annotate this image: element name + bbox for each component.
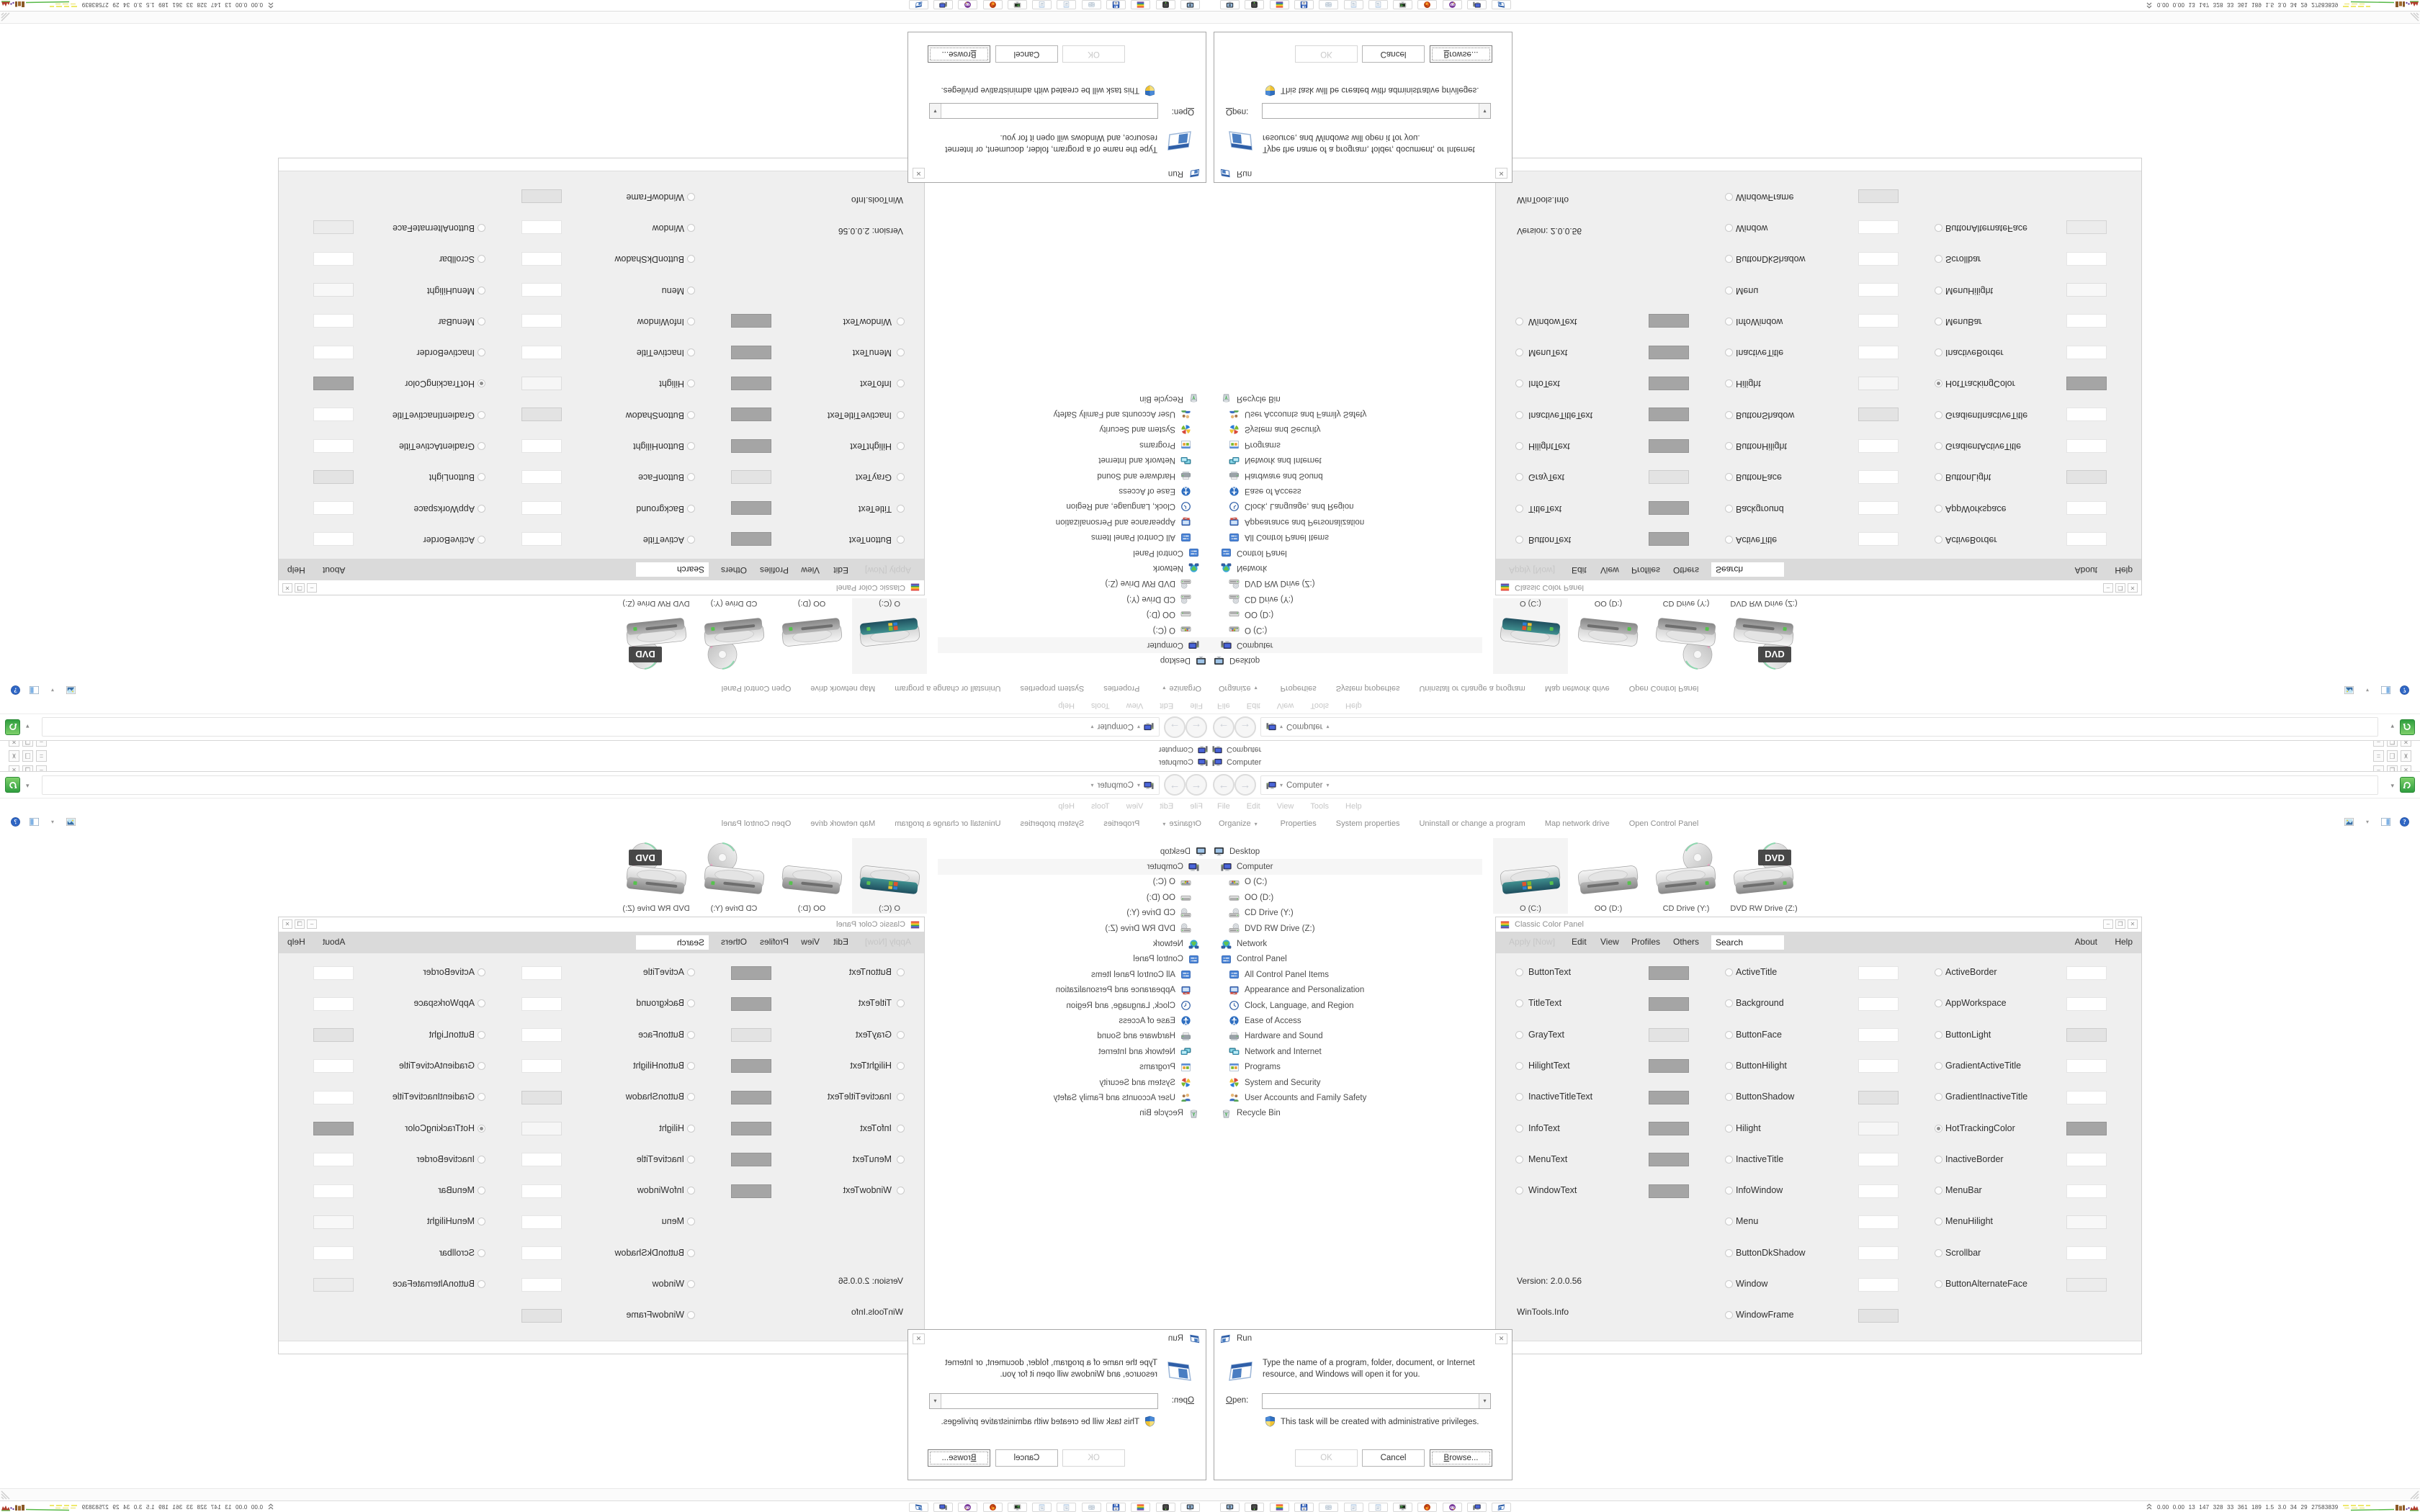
taskbar-button-firefox[interactable] [1417, 0, 1437, 10]
color-swatch-buttonlight[interactable] [313, 1028, 354, 1042]
radio-gradientinactivetitle[interactable] [1935, 411, 1942, 419]
color-swatch-hilighttext[interactable] [1649, 439, 1689, 453]
radio-activetitle[interactable] [687, 968, 695, 976]
radio-graytext[interactable] [897, 473, 905, 481]
tree-item-programs[interactable]: Programs [1210, 437, 1482, 452]
color-swatch-activeborder[interactable] [2066, 533, 2107, 546]
run-open-input[interactable]: ▾ [929, 1393, 1158, 1409]
color-swatch-menu[interactable] [521, 283, 562, 297]
radio-windowframe[interactable] [687, 1311, 695, 1319]
menu-item-tools[interactable]: Tools [1091, 702, 1110, 711]
color-swatch-buttonlight[interactable] [313, 470, 354, 484]
taskbar-button-notepad[interactable] [1057, 1503, 1077, 1512]
chevron-down-icon[interactable]: ▾ [2366, 687, 2369, 693]
radio-menu[interactable] [1725, 287, 1733, 294]
command-map-network-drive[interactable]: Map network drive [810, 819, 875, 828]
radio-buttonhilight[interactable] [1725, 442, 1733, 450]
color-swatch-graytext[interactable] [1649, 470, 1689, 484]
radio-buttonface[interactable] [687, 1031, 695, 1039]
close-icon[interactable]: ✕ [2128, 919, 2138, 929]
tree-item-oo-d-[interactable]: OO (D:) [1210, 606, 1482, 621]
radio-windowtext[interactable] [1515, 1187, 1523, 1194]
color-swatch-hilighttext[interactable] [1649, 1059, 1689, 1073]
radio-buttonlight[interactable] [478, 473, 485, 481]
color-swatch-hottrackingcolor[interactable] [313, 1122, 354, 1135]
taskbar-button-console[interactable] [1008, 0, 1027, 10]
color-swatch-buttonhilight[interactable] [521, 439, 562, 453]
refresh-button[interactable] [5, 719, 20, 735]
ccp-apply-button[interactable]: Apply [Now] [865, 937, 911, 947]
color-swatch-buttontext[interactable] [1649, 533, 1689, 546]
color-swatch-activetitle[interactable] [521, 966, 562, 980]
run-open-input[interactable]: ▾ [1262, 103, 1491, 119]
refresh-button[interactable] [2400, 777, 2415, 793]
ccp-menu-view[interactable]: View [1600, 565, 1619, 575]
color-swatch-graytext[interactable] [731, 470, 771, 484]
tree-item-cd-drive-y-[interactable]: CD Drive (Y:) [938, 591, 1210, 606]
color-swatch-hilight[interactable] [521, 1122, 562, 1135]
radio-menuhilight[interactable] [1935, 287, 1942, 294]
color-swatch-menuhilight[interactable] [313, 1215, 354, 1229]
drive-oo-d-[interactable]: OO (D:) [1571, 598, 1646, 674]
color-swatch-hilighttext[interactable] [731, 1059, 771, 1073]
preview-pane-icon[interactable] [2380, 816, 2391, 827]
radio-buttonshadow[interactable] [1725, 1093, 1733, 1101]
radio-hilighttext[interactable] [897, 1062, 905, 1070]
color-swatch-windowframe[interactable] [1858, 1309, 1899, 1323]
address-bar[interactable]: ▾ Computer ▾ [1260, 775, 2378, 795]
taskbar-button-scroll[interactable] [1082, 0, 1101, 10]
menu-item-help[interactable]: Help [1058, 702, 1075, 711]
radio-window[interactable] [1725, 224, 1733, 232]
radio-buttondkshadow[interactable] [1725, 1249, 1733, 1257]
tree-item-control-panel[interactable]: Control Panel [938, 952, 1210, 967]
menu-item-help[interactable]: Help [1345, 702, 1362, 711]
help-icon[interactable]: ? [10, 685, 21, 696]
chevron-down-icon[interactable]: ▾ [1090, 724, 1093, 730]
color-swatch-inactiveborder[interactable] [313, 346, 354, 359]
radio-buttonhilight[interactable] [687, 1062, 695, 1070]
run-open-input[interactable]: ▾ [929, 103, 1158, 119]
chevron-down-icon[interactable]: ▾ [1280, 782, 1283, 788]
tree-item-appearance-and-personalization[interactable]: Appearance and Personalization [938, 514, 1210, 529]
radio-infotext[interactable] [897, 380, 905, 388]
command-map-network-drive[interactable]: Map network drive [1545, 685, 1610, 693]
tree-item-ease-of-access[interactable]: Ease of Access [1210, 483, 1482, 498]
chevron-down-icon[interactable]: ▾ [1280, 724, 1283, 730]
ccp-about-button[interactable]: About [2075, 565, 2097, 575]
forward-button[interactable]: → [1234, 774, 1256, 796]
tree-item-system-and-security[interactable]: System and Security [1210, 422, 1482, 437]
color-swatch-graytext[interactable] [731, 1028, 771, 1042]
radio-infowindow[interactable] [1725, 318, 1733, 325]
refresh-button[interactable] [5, 777, 20, 793]
chevron-down-icon[interactable]: ▾ [1090, 782, 1093, 788]
chevron-down-icon[interactable]: ▾ [930, 1394, 941, 1408]
radio-windowframe[interactable] [1725, 193, 1733, 201]
ccp-apply-button[interactable]: Apply [Now] [1509, 565, 1555, 575]
address-location[interactable]: Computer [1286, 781, 1323, 790]
radio-activetitle[interactable] [1725, 536, 1733, 544]
ccp-apply-button[interactable]: Apply [Now] [865, 565, 911, 575]
command-system-properties[interactable]: System properties [1021, 685, 1085, 693]
radio-menu[interactable] [687, 1218, 695, 1225]
ccp-menu-others[interactable]: Others [721, 937, 747, 947]
radio-activetitle[interactable] [1725, 968, 1733, 976]
command-properties[interactable]: Properties [1103, 685, 1139, 693]
show-hidden-icons-chevron-icon[interactable] [2146, 1, 2153, 9]
command-organize[interactable]: Organize▾ [1219, 685, 1261, 693]
color-swatch-buttonalternateface[interactable] [313, 1278, 354, 1292]
color-swatch-buttontext[interactable] [1649, 966, 1689, 980]
color-swatch-buttonshadow[interactable] [1858, 408, 1899, 421]
ok-button[interactable]: OK [1295, 45, 1358, 63]
color-swatch-windowtext[interactable] [1649, 314, 1689, 328]
change-view-icon[interactable] [66, 685, 76, 696]
color-swatch-buttonface[interactable] [1858, 470, 1899, 484]
radio-menutext[interactable] [897, 1156, 905, 1164]
resize-grip[interactable] [2409, 1490, 2419, 1500]
color-swatch-menu[interactable] [1858, 283, 1899, 297]
color-swatch-hilight[interactable] [1858, 1122, 1899, 1135]
radio-buttonshadow[interactable] [687, 411, 695, 419]
tree-item-ease-of-access[interactable]: Ease of Access [1210, 1013, 1482, 1028]
color-swatch-buttontext[interactable] [731, 966, 771, 980]
menu-item-edit[interactable]: Edit [1247, 802, 1260, 811]
close-icon[interactable]: ✕ [913, 168, 925, 179]
taskbar-button-scroll[interactable] [1082, 1503, 1101, 1512]
radio-menutext[interactable] [897, 348, 905, 356]
radio-appworkspace[interactable] [478, 505, 485, 513]
taskbar-button-firefox[interactable] [1417, 1503, 1437, 1512]
color-swatch-buttonalternateface[interactable] [2066, 1278, 2107, 1292]
radio-inactivetitletext[interactable] [897, 411, 905, 419]
preview-pane-icon[interactable] [29, 685, 40, 696]
tree-item-dvd-rw-drive-z-[interactable]: DVD RW Drive (Z:) [938, 921, 1210, 936]
menu-item-tools[interactable]: Tools [1310, 702, 1329, 711]
taskbar-button-floppy64[interactable]: 64 [1294, 1503, 1314, 1512]
menu-item-view[interactable]: View [1126, 702, 1144, 711]
address-history-dropdown-icon[interactable]: ▾ [26, 722, 30, 730]
radio-gradientinactivetitle[interactable] [1935, 1093, 1942, 1101]
taskbar-button-notepad[interactable] [1057, 0, 1077, 10]
tree-item-all-control-panel-items[interactable]: All Control Panel Items [1210, 967, 1482, 982]
ccp-menu-profiles[interactable]: Profiles [760, 937, 789, 947]
radio-background[interactable] [687, 999, 695, 1007]
radio-buttonalternateface[interactable] [1935, 224, 1942, 232]
tree-item-computer[interactable]: Computer [1210, 637, 1482, 652]
chevron-down-icon[interactable]: ▾ [1479, 1394, 1490, 1408]
radio-scrollbar[interactable] [1935, 1249, 1942, 1257]
tree-item-hardware-and-sound[interactable]: Hardware and Sound [938, 1029, 1210, 1044]
taskbar-button-monitor-camera[interactable] [1220, 0, 1240, 10]
radio-buttonlight[interactable] [1935, 1031, 1942, 1039]
search-input[interactable] [636, 935, 709, 950]
tree-item-user-accounts-and-family-safety[interactable]: User Accounts and Family Safety [938, 1090, 1210, 1105]
color-swatch-windowtext[interactable] [731, 1184, 771, 1198]
radio-inactivetitletext[interactable] [1515, 1093, 1523, 1101]
taskbar-button-rainbow[interactable] [1270, 1503, 1289, 1512]
radio-scrollbar[interactable] [478, 1249, 485, 1257]
radio-buttontext[interactable] [897, 536, 905, 544]
drive-o-c-[interactable]: O (C:) [1493, 598, 1568, 674]
chevron-down-icon[interactable]: ▾ [1327, 724, 1330, 730]
ccp-menu-edit[interactable]: Edit [833, 565, 848, 575]
taskbar-button-floppy64[interactable]: 64 [1294, 0, 1314, 10]
color-swatch-gradientactivetitle[interactable] [2066, 1059, 2107, 1073]
taskbar-button-monitor-camera[interactable] [1180, 1503, 1200, 1512]
refresh-button[interactable] [2400, 719, 2415, 735]
radio-activeborder[interactable] [1935, 968, 1942, 976]
menu-item-edit[interactable]: Edit [1160, 802, 1173, 811]
resize-grip[interactable] [1, 1490, 11, 1500]
taskbar-button-purple-mask[interactable] [1443, 0, 1462, 10]
taskbar-button-console[interactable] [1008, 1503, 1027, 1512]
radio-background[interactable] [1725, 505, 1733, 513]
taskbar-button-firefox[interactable] [983, 0, 1003, 10]
minimize-icon[interactable]: – [36, 756, 47, 762]
taskbar-button-floppy64[interactable]: 64 [1106, 1503, 1126, 1512]
radio-gradientactivetitle[interactable] [1935, 442, 1942, 450]
radio-buttonface[interactable] [1725, 1031, 1733, 1039]
radio-appworkspace[interactable] [478, 999, 485, 1007]
color-swatch-background[interactable] [521, 997, 562, 1011]
ccp-apply-button[interactable]: Apply [Now] [1509, 937, 1555, 947]
taskbar-button-notepad[interactable] [1032, 0, 1052, 10]
radio-buttonlight[interactable] [1935, 473, 1942, 481]
tree-item-recycle-bin[interactable]: Recycle Bin [1210, 391, 1482, 406]
drive-dvd-rw-drive-z-[interactable]: DVDDVD RW Drive (Z:) [1726, 598, 1801, 674]
color-swatch-window[interactable] [521, 221, 562, 235]
radio-inactivetitletext[interactable] [1515, 411, 1523, 419]
drive-dvd-rw-drive-z-[interactable]: DVDDVD RW Drive (Z:) [619, 838, 694, 914]
radio-menuhilight[interactable] [1935, 1218, 1942, 1225]
color-swatch-infotext[interactable] [1649, 1122, 1689, 1135]
tree-item-recycle-bin[interactable]: Recycle Bin [938, 391, 1210, 406]
radio-activeborder[interactable] [478, 968, 485, 976]
color-swatch-hottrackingcolor[interactable] [2066, 1122, 2107, 1135]
ccp-menu-view[interactable]: View [801, 565, 820, 575]
address-location[interactable]: Computer [1286, 723, 1323, 732]
menu-item-tools[interactable]: Tools [1091, 802, 1110, 811]
tree-item-desktop[interactable]: Desktop [938, 653, 1210, 668]
radio-selected-hottrackingcolor[interactable] [1935, 380, 1942, 388]
taskbar-button-monitor-camera[interactable] [1220, 1503, 1240, 1512]
command-system-properties[interactable]: System properties [1336, 685, 1400, 693]
radio-buttonlight[interactable] [478, 1031, 485, 1039]
menu-item-file[interactable]: File [1217, 702, 1230, 711]
taskbar-button-rainbow[interactable] [1131, 1503, 1150, 1512]
color-swatch-windowframe[interactable] [521, 189, 562, 203]
radio-inactivetitle[interactable] [687, 1156, 695, 1164]
color-swatch-buttonface[interactable] [521, 1028, 562, 1042]
tree-item-user-accounts-and-family-safety[interactable]: User Accounts and Family Safety [1210, 406, 1482, 421]
radio-window[interactable] [687, 1280, 695, 1288]
chevron-down-icon[interactable]: ▾ [1327, 782, 1330, 788]
radio-selected-hottrackingcolor[interactable] [478, 1125, 485, 1133]
tree-item-all-control-panel-items[interactable]: All Control Panel Items [1210, 529, 1482, 544]
color-swatch-inactiveborder[interactable] [313, 1153, 354, 1166]
command-system-properties[interactable]: System properties [1021, 819, 1085, 828]
taskbar-button-console[interactable] [1393, 0, 1412, 10]
tree-item-cd-drive-y-[interactable]: CD Drive (Y:) [938, 906, 1210, 921]
tree-item-control-panel[interactable]: Control Panel [1210, 952, 1482, 967]
menu-item-file[interactable]: File [1190, 802, 1203, 811]
restore-icon[interactable]: ❐ [2387, 750, 2398, 756]
radio-appworkspace[interactable] [1935, 505, 1942, 513]
color-swatch-window[interactable] [1858, 221, 1899, 235]
ccp-menu-profiles[interactable]: Profiles [1631, 937, 1660, 947]
tree-item-o-c-[interactable]: O (C:) [938, 875, 1210, 890]
radio-buttonshadow[interactable] [687, 1093, 695, 1101]
back-button[interactable]: ← [1213, 774, 1234, 796]
radio-buttontext[interactable] [897, 968, 905, 976]
radio-windowframe[interactable] [1725, 1311, 1733, 1319]
radio-menubar[interactable] [478, 1187, 485, 1194]
taskbar-button-purple-mask[interactable] [1443, 1503, 1462, 1512]
color-swatch-buttondkshadow[interactable] [1858, 252, 1899, 266]
color-swatch-graytext[interactable] [1649, 1028, 1689, 1042]
color-swatch-appworkspace[interactable] [2066, 997, 2107, 1011]
taskbar-button-floppy64[interactable]: 64 [1106, 0, 1126, 10]
color-swatch-menutext[interactable] [731, 346, 771, 359]
color-swatch-hilighttext[interactable] [731, 439, 771, 453]
radio-inactivetitle[interactable] [687, 348, 695, 356]
minimize-icon[interactable]: – [307, 583, 317, 593]
ccp-help-button[interactable]: Help [2115, 937, 2133, 947]
tree-item-clock-language-and-region[interactable]: Clock, Language, and Region [1210, 998, 1482, 1013]
color-swatch-inactivetitle[interactable] [521, 346, 562, 359]
tree-item-dvd-rw-drive-z-[interactable]: DVD RW Drive (Z:) [938, 576, 1210, 591]
ccp-menu-profiles[interactable]: Profiles [760, 565, 789, 575]
radio-hilighttext[interactable] [1515, 1062, 1523, 1070]
tray-performance-graphs-icon[interactable] [2342, 1, 2419, 9]
taskbar-button-scroll[interactable] [1319, 0, 1338, 10]
minimize-icon[interactable]: – [2103, 583, 2113, 593]
search-input[interactable] [636, 562, 709, 577]
taskbar-button-purple-mask[interactable] [958, 0, 977, 10]
radio-hilight[interactable] [1725, 1125, 1733, 1133]
ccp-titlebar[interactable]: Classic Color Panel [279, 580, 924, 595]
color-swatch-windowframe[interactable] [521, 1309, 562, 1323]
color-swatch-buttondkshadow[interactable] [521, 1246, 562, 1260]
close-icon[interactable]: ✕ [1495, 168, 1507, 179]
command-properties[interactable]: Properties [1281, 819, 1317, 828]
radio-buttonalternateface[interactable] [478, 224, 485, 232]
radio-infowindow[interactable] [687, 318, 695, 325]
command-organize[interactable]: Organize▾ [1219, 819, 1261, 828]
taskbar-button-computer[interactable] [1467, 1503, 1487, 1512]
background-tree-item[interactable]: Computer [1159, 757, 1208, 768]
ccp-about-button[interactable]: About [2075, 937, 2097, 947]
forward-button[interactable]: → [1164, 716, 1186, 738]
color-swatch-inactivetitle[interactable] [521, 1153, 562, 1166]
color-swatch-inactivetitle[interactable] [1858, 1153, 1899, 1166]
resize-grip[interactable] [2409, 12, 2419, 22]
tree-item-programs[interactable]: Programs [938, 1059, 1210, 1074]
radio-graytext[interactable] [897, 1031, 905, 1039]
radio-buttonface[interactable] [687, 473, 695, 481]
radio-inactiveborder[interactable] [478, 348, 485, 356]
color-swatch-inactiveborder[interactable] [2066, 346, 2107, 359]
ccp-site-link[interactable]: WinTools.Info [851, 1307, 903, 1317]
tree-item-network-and-internet[interactable]: Network and Internet [938, 453, 1210, 468]
command-uninstall-or-change-a-program[interactable]: Uninstall or change a program [1419, 685, 1525, 693]
drive-dvd-rw-drive-z-[interactable]: DVDDVD RW Drive (Z:) [619, 598, 694, 674]
color-swatch-buttonhilight[interactable] [1858, 1059, 1899, 1073]
taskbar-button-run[interactable] [1492, 0, 1511, 10]
color-swatch-infowindow[interactable] [521, 314, 562, 328]
command-uninstall-or-change-a-program[interactable]: Uninstall or change a program [895, 819, 1000, 828]
radio-infowindow[interactable] [1725, 1187, 1733, 1194]
color-swatch-inactivetitletext[interactable] [1649, 408, 1689, 421]
color-swatch-background[interactable] [1858, 997, 1899, 1011]
taskbar-button-notepad[interactable] [1344, 1503, 1363, 1512]
ccp-site-link[interactable]: WinTools.Info [1517, 1307, 1569, 1317]
show-hidden-icons-chevron-icon[interactable] [267, 1, 274, 9]
tree-item-network-and-internet[interactable]: Network and Internet [1210, 453, 1482, 468]
radio-menu[interactable] [1725, 1218, 1733, 1225]
drive-o-c-[interactable]: O (C:) [852, 598, 927, 674]
minimize-icon[interactable]: – [307, 919, 317, 929]
radio-appworkspace[interactable] [1935, 999, 1942, 1007]
restore-icon[interactable]: ❐ [295, 919, 305, 929]
browse-button[interactable]: Browse... [1430, 1449, 1492, 1467]
minimize-icon[interactable]: – [36, 750, 47, 756]
taskbar-button-device-led[interactable] [1156, 0, 1175, 10]
color-swatch-window[interactable] [521, 1278, 562, 1292]
minimize-icon[interactable]: – [2373, 756, 2384, 762]
tree-item-hardware-and-sound[interactable]: Hardware and Sound [1210, 468, 1482, 483]
radio-inactivetitletext[interactable] [897, 1093, 905, 1101]
tree-item-programs[interactable]: Programs [1210, 1059, 1482, 1074]
tree-item-control-panel[interactable]: Control Panel [938, 545, 1210, 560]
tree-item-network[interactable]: Network [1210, 936, 1482, 951]
run-titlebar[interactable]: Run [908, 1330, 1206, 1347]
color-swatch-appworkspace[interactable] [313, 501, 354, 515]
tree-item-oo-d-[interactable]: OO (D:) [938, 606, 1210, 621]
color-swatch-titletext[interactable] [1649, 501, 1689, 515]
radio-buttonalternateface[interactable] [1935, 1280, 1942, 1288]
tree-item-user-accounts-and-family-safety[interactable]: User Accounts and Family Safety [938, 406, 1210, 421]
tree-item-computer[interactable]: Computer [938, 859, 1210, 874]
tree-item-clock-language-and-region[interactable]: Clock, Language, and Region [938, 998, 1210, 1013]
radio-graytext[interactable] [1515, 1031, 1523, 1039]
color-swatch-buttondkshadow[interactable] [521, 252, 562, 266]
radio-menutext[interactable] [1515, 1156, 1523, 1164]
radio-titletext[interactable] [897, 505, 905, 513]
back-button[interactable]: ← [1213, 716, 1234, 738]
radio-windowtext[interactable] [897, 318, 905, 325]
radio-menubar[interactable] [1935, 1187, 1942, 1194]
radio-infotext[interactable] [1515, 1125, 1523, 1133]
restore-icon[interactable]: ❐ [2387, 756, 2398, 762]
color-swatch-background[interactable] [1858, 501, 1899, 515]
ccp-menu-view[interactable]: View [801, 937, 820, 947]
color-swatch-scrollbar[interactable] [2066, 1246, 2107, 1260]
address-bar[interactable]: ▾ Computer ▾ [42, 717, 1160, 737]
browse-button[interactable]: Browse... [928, 45, 990, 63]
tree-item-programs[interactable]: Programs [938, 437, 1210, 452]
menu-item-tools[interactable]: Tools [1310, 802, 1329, 811]
radio-titletext[interactable] [1515, 999, 1523, 1007]
color-swatch-gradientactivetitle[interactable] [313, 439, 354, 453]
taskbar-button-notepad[interactable] [1344, 0, 1363, 10]
color-swatch-activeborder[interactable] [313, 533, 354, 546]
command-map-network-drive[interactable]: Map network drive [810, 685, 875, 693]
taskbar-button-run[interactable] [909, 1503, 928, 1512]
color-swatch-menuhilight[interactable] [2066, 283, 2107, 297]
